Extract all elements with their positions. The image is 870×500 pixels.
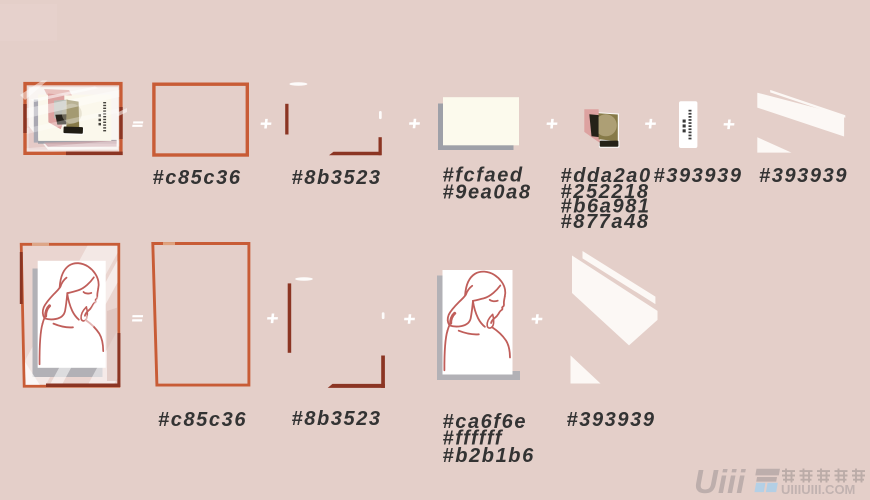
svg-text:#877a48: #877a48	[561, 211, 650, 233]
svg-text:#393939: #393939	[759, 165, 848, 187]
svg-text:#393939: #393939	[567, 409, 656, 431]
svg-text:UIIIUIII.COM: UIIIUIII.COM	[781, 482, 855, 497]
svg-text:#8b3523: #8b3523	[292, 167, 382, 189]
svg-text:#c85c36: #c85c36	[158, 409, 247, 431]
svg-text:#c85c36: #c85c36	[153, 167, 242, 189]
svg-text:#b2b1b6: #b2b1b6	[443, 445, 535, 467]
svg-text:Uiii: Uiii	[694, 463, 746, 500]
svg-text:#393939: #393939	[654, 165, 743, 187]
svg-text:#9ea0a8: #9ea0a8	[443, 182, 532, 204]
svg-text:#8b3523: #8b3523	[292, 408, 382, 430]
